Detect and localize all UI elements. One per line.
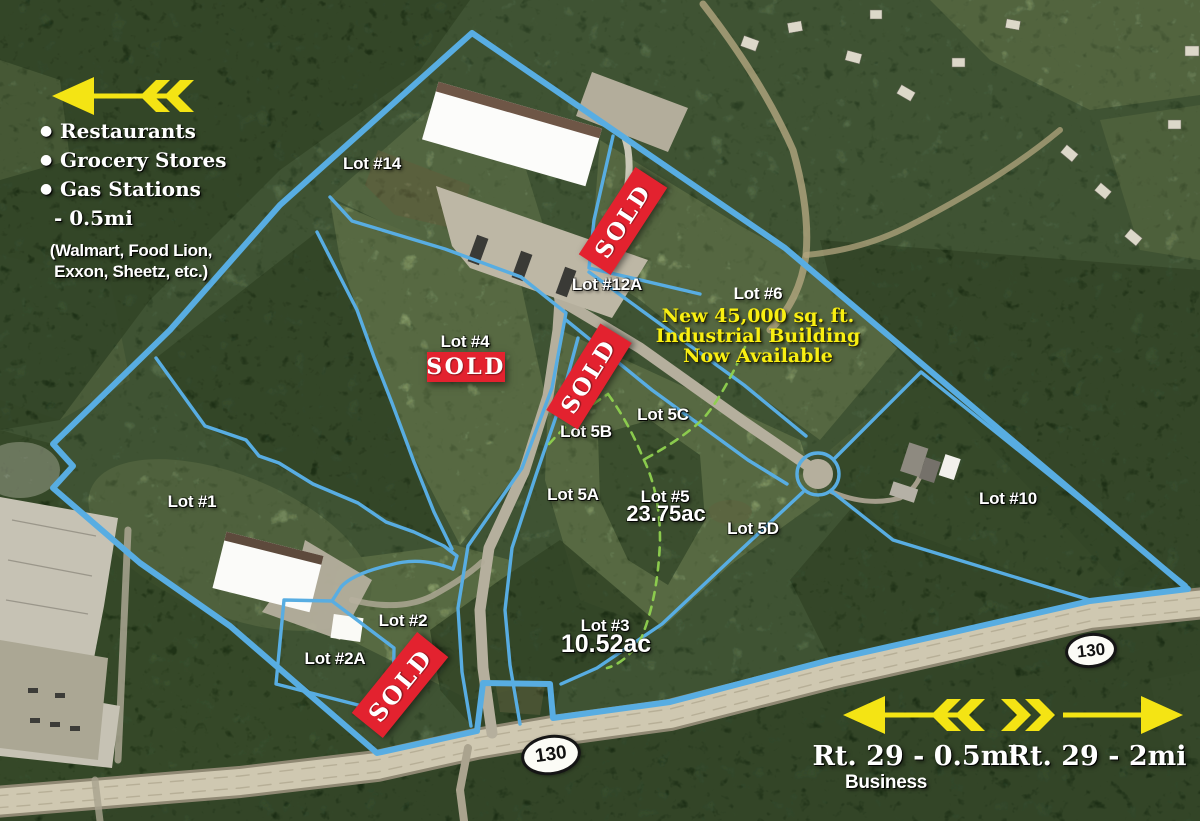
lot-label-5b: Lot 5B xyxy=(560,422,612,442)
lot-label-2a: Lot #2A xyxy=(305,649,366,669)
lot-label-2: Lot #2 xyxy=(379,611,428,631)
lot-label-5a: Lot 5A xyxy=(547,485,599,505)
lot-label-10: Lot #10 xyxy=(979,489,1037,509)
lot-label-3-acreage: 10.52ac xyxy=(561,630,651,659)
poi-legend: Restaurants Grocery Stores Gas Stations … xyxy=(40,117,227,233)
promo-line3: Now Available xyxy=(656,346,861,366)
legend-item-gas: Gas Stations xyxy=(40,175,227,204)
lot-label-5-acreage: 23.75ac xyxy=(626,501,706,527)
rt29-business-sublabel: Business xyxy=(845,772,927,794)
lot-label-5c: Lot 5C xyxy=(637,405,689,425)
lot-label-4: Lot #4 xyxy=(441,332,490,352)
sold-badge-lot4: SOLD xyxy=(427,352,505,382)
legend-note-line2: Exxon, Sheetz, etc.) xyxy=(36,261,226,282)
legend-note-line1: (Walmart, Food Lion, xyxy=(36,240,226,261)
lot6-promo: Lot #6 New 45,000 sq. ft. Industrial Bui… xyxy=(656,284,861,366)
legend-distance: - 0.5mi xyxy=(40,204,227,233)
promo-line2: Industrial Building xyxy=(656,326,861,346)
rt29-distance-label: Rt. 29 - 2mi xyxy=(1008,741,1187,772)
industrial-park-aerial-map: Restaurants Grocery Stores Gas Stations … xyxy=(0,0,1200,821)
lot-label-12a: Lot #12A xyxy=(572,275,642,295)
legend-item-restaurants: Restaurants xyxy=(40,117,227,146)
lot-label-5d: Lot 5D xyxy=(727,519,779,539)
lot-label-6: Lot #6 xyxy=(656,284,861,304)
legend-item-grocery: Grocery Stores xyxy=(40,146,227,175)
lot-label-14: Lot #14 xyxy=(343,154,401,174)
promo-line1: New 45,000 sq. ft. xyxy=(656,306,861,326)
legend-note: (Walmart, Food Lion, Exxon, Sheetz, etc.… xyxy=(36,240,226,282)
lot-label-1: Lot #1 xyxy=(168,492,217,512)
rt29-business-distance-label: Rt. 29 - 0.5mi xyxy=(812,741,1019,772)
